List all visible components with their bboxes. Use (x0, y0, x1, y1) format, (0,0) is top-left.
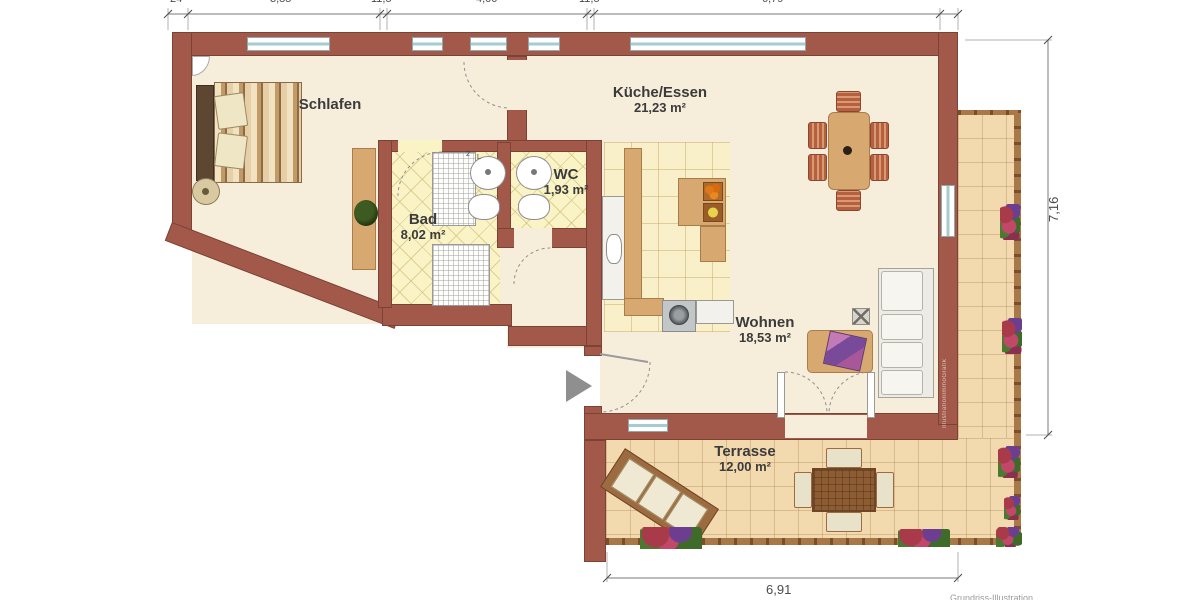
dining-candle (843, 146, 852, 155)
wall-bath-bottom (382, 304, 512, 326)
room-area: 8,02 m² (388, 228, 458, 243)
bedside-lamp-center (202, 188, 209, 195)
flowers-right-4 (1004, 496, 1020, 520)
room-label-wohnen: Wohnen 18,53 m² (710, 314, 820, 346)
room-label-terrasse: Terrasse 12,00 m² (690, 443, 800, 475)
kitchen-island-2 (700, 226, 726, 262)
fruit-basket-oranges (703, 182, 723, 201)
stove-pot (669, 305, 689, 325)
room-label-wc: WC 1,93 m² (536, 166, 596, 198)
dim-right-716: 7,16 (1046, 197, 1061, 222)
terrace-table (812, 468, 876, 512)
bath-door-opening (398, 140, 442, 152)
room-name: Bad (388, 211, 458, 228)
room-name: Schlafen (265, 96, 395, 113)
clipped-caption: Grundriss-Illustration (950, 593, 1033, 600)
room-area: 1,93 m² (536, 183, 596, 198)
dining-chair-left-2 (808, 154, 827, 181)
dim-top-24: 24 (170, 0, 182, 5)
kitchen-sink (606, 234, 622, 264)
bath-mark-2: 2 (466, 151, 470, 158)
wall-terrace-left (584, 440, 606, 562)
dim-top-400: 4,00 (476, 0, 497, 5)
window-hall-top (528, 37, 560, 51)
watermark-text: IllustrationImmoGrafik (942, 348, 948, 428)
bed-pillow-2 (214, 132, 248, 169)
wall-entry (584, 346, 602, 356)
flowers-right-1 (1000, 204, 1020, 240)
dim-bottom-691: 6,91 (766, 582, 791, 597)
flowers-bottom-left (640, 527, 702, 549)
window-kitchen-top (630, 37, 806, 51)
terrace-chair-top (826, 448, 862, 468)
dining-chair-left-1 (808, 122, 827, 149)
terrace-chair-left (794, 472, 812, 508)
dining-chair-bottom (836, 190, 861, 211)
window-right-wall (941, 185, 955, 237)
bath-toilet (468, 194, 500, 220)
sofa-seat-2 (881, 342, 923, 368)
room-area: 18,53 m² (710, 331, 820, 346)
dim-top-115a: 11,5 (371, 0, 392, 5)
wc-door-opening (514, 228, 552, 248)
room-name: Terrasse (690, 443, 800, 460)
floorplan-canvas: Schlafen Küche/Essen 21,23 m² WC 1,93 m²… (0, 0, 1200, 600)
flowers-bottom-right (898, 529, 950, 547)
sofa-seat-1 (881, 314, 923, 340)
kitchen-counter-bottom (624, 298, 664, 316)
window-bath-top-2 (470, 37, 507, 51)
dim-top-385: 3,85 (270, 0, 291, 5)
terrace-door-leaf-right (867, 372, 875, 418)
entry-arrow-icon (566, 370, 592, 402)
bedroom-door-opening (507, 60, 527, 110)
flowers-right-3 (998, 446, 1020, 478)
bath-sink-tap (485, 169, 491, 175)
flowers-corner (996, 527, 1022, 547)
window-bath-top-1 (412, 37, 443, 51)
terrace-chair-right (876, 472, 894, 508)
sofa-seat-3 (881, 370, 923, 395)
shower (432, 244, 490, 306)
dim-top-115b: 11,5 (579, 0, 600, 5)
window-bedroom-top (247, 37, 330, 51)
window-living-bottom (628, 419, 668, 432)
flowers-right-2 (1002, 318, 1022, 354)
plant (354, 200, 378, 226)
bed-pillow-1 (214, 92, 248, 130)
room-label-schlafen: Schlafen (265, 96, 395, 113)
dining-chair-right-2 (870, 154, 889, 181)
wall-left (172, 32, 192, 240)
room-label-bad: Bad 8,02 m² (388, 211, 458, 243)
room-label-kueche: Küche/Essen 21,23 m² (590, 84, 730, 116)
room-name: Wohnen (710, 314, 820, 331)
kitchen-counter-left (624, 148, 642, 300)
sofa-chaise (881, 271, 923, 311)
terrace-door-opening (785, 415, 867, 438)
side-table (852, 308, 870, 325)
dim-top-679: 6,79 (762, 0, 783, 5)
terrace-door-leaf-left (777, 372, 785, 418)
room-name: WC (536, 166, 596, 183)
dining-chair-top (836, 91, 861, 112)
room-area: 21,23 m² (590, 101, 730, 116)
room-name: Küche/Essen (590, 84, 730, 101)
fruit-bowl-bananas (703, 203, 723, 222)
wall-bath-wc (497, 142, 511, 232)
dining-chair-right-1 (870, 122, 889, 149)
room-area: 12,00 m² (690, 460, 800, 475)
terrace-chair-bottom (826, 512, 862, 532)
bath-mark-l: L (477, 154, 481, 161)
terrace-edge-top (958, 110, 1018, 115)
bed-headboard (196, 85, 214, 181)
